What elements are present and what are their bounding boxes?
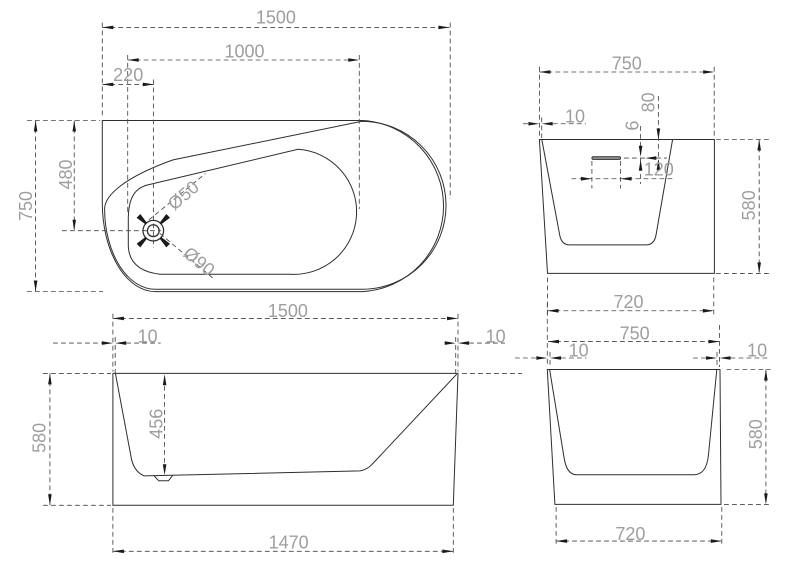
svg-text:720: 720 xyxy=(613,292,643,312)
svg-text:750: 750 xyxy=(612,54,642,74)
svg-text:10: 10 xyxy=(138,326,158,346)
svg-text:580: 580 xyxy=(746,419,766,449)
svg-text:10: 10 xyxy=(565,106,585,126)
svg-text:1500: 1500 xyxy=(268,301,308,321)
svg-text:220: 220 xyxy=(113,65,143,85)
svg-text:580: 580 xyxy=(739,190,759,220)
svg-text:10: 10 xyxy=(747,340,767,360)
svg-text:480: 480 xyxy=(56,159,76,189)
svg-text:80: 80 xyxy=(638,92,658,112)
svg-text:120: 120 xyxy=(644,160,674,180)
svg-text:1470: 1470 xyxy=(269,533,309,553)
svg-text:Ø50: Ø50 xyxy=(164,177,203,214)
svg-text:456: 456 xyxy=(146,409,166,439)
svg-text:10: 10 xyxy=(486,326,506,346)
svg-text:720: 720 xyxy=(615,524,645,544)
svg-text:580: 580 xyxy=(30,423,50,453)
svg-text:1500: 1500 xyxy=(256,8,296,28)
svg-text:1000: 1000 xyxy=(224,42,264,62)
svg-text:750: 750 xyxy=(620,323,650,343)
svg-text:6: 6 xyxy=(623,121,643,131)
svg-text:750: 750 xyxy=(16,191,36,221)
svg-text:10: 10 xyxy=(569,340,589,360)
